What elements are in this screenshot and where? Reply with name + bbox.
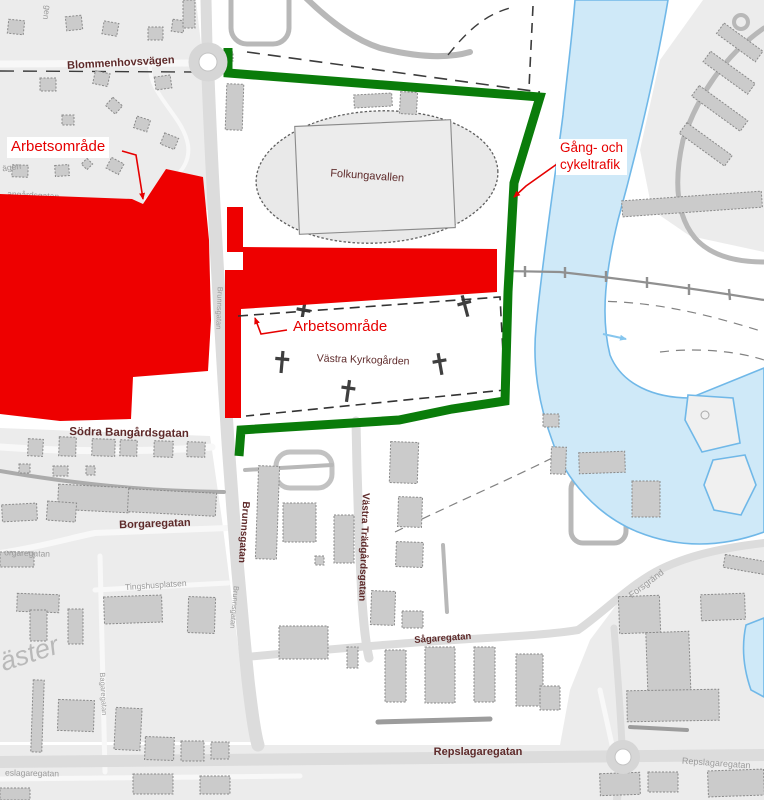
street-label-sagaregatan: Sågaregatan [414,631,472,646]
map-canvas: BlommenhovsvägenFolkungavallenVästra Kyr… [0,0,764,800]
street-label-borgaregatan-fragment: orgaregatan [4,547,50,559]
construction-area-map: BlommenhovsvägenFolkungavallenVästra Kyr… [0,0,764,800]
street-label-repslagaregatan-fragment: eslagaregatan [5,768,59,779]
annotation-arbetsomrade-east: Arbetsområde [289,317,391,338]
street-label-repslagaregatan: Repslagaregatan [434,746,523,758]
annotation-arbetsomrade-west: Arbetsområde [7,137,109,158]
street-label-brunnsgatan-gray-1: Brunnsgatan [214,287,224,330]
cemetery-crosses [274,294,475,403]
annotation-gang-och-cykeltrafik: Gång- och cykeltrafik [556,139,627,175]
work-area-east-block [227,207,243,252]
street-label-vastra-kyrkogarden: Västra Kyrkogården [317,352,410,367]
street-label-sodra-bangardsgatan: Södra Bangårdsgatan [69,426,189,440]
arrow-arbetsomrade-east [255,318,287,334]
street-label-borgaregatan: Borgaregatan [119,517,191,531]
work-area-west [0,169,211,421]
